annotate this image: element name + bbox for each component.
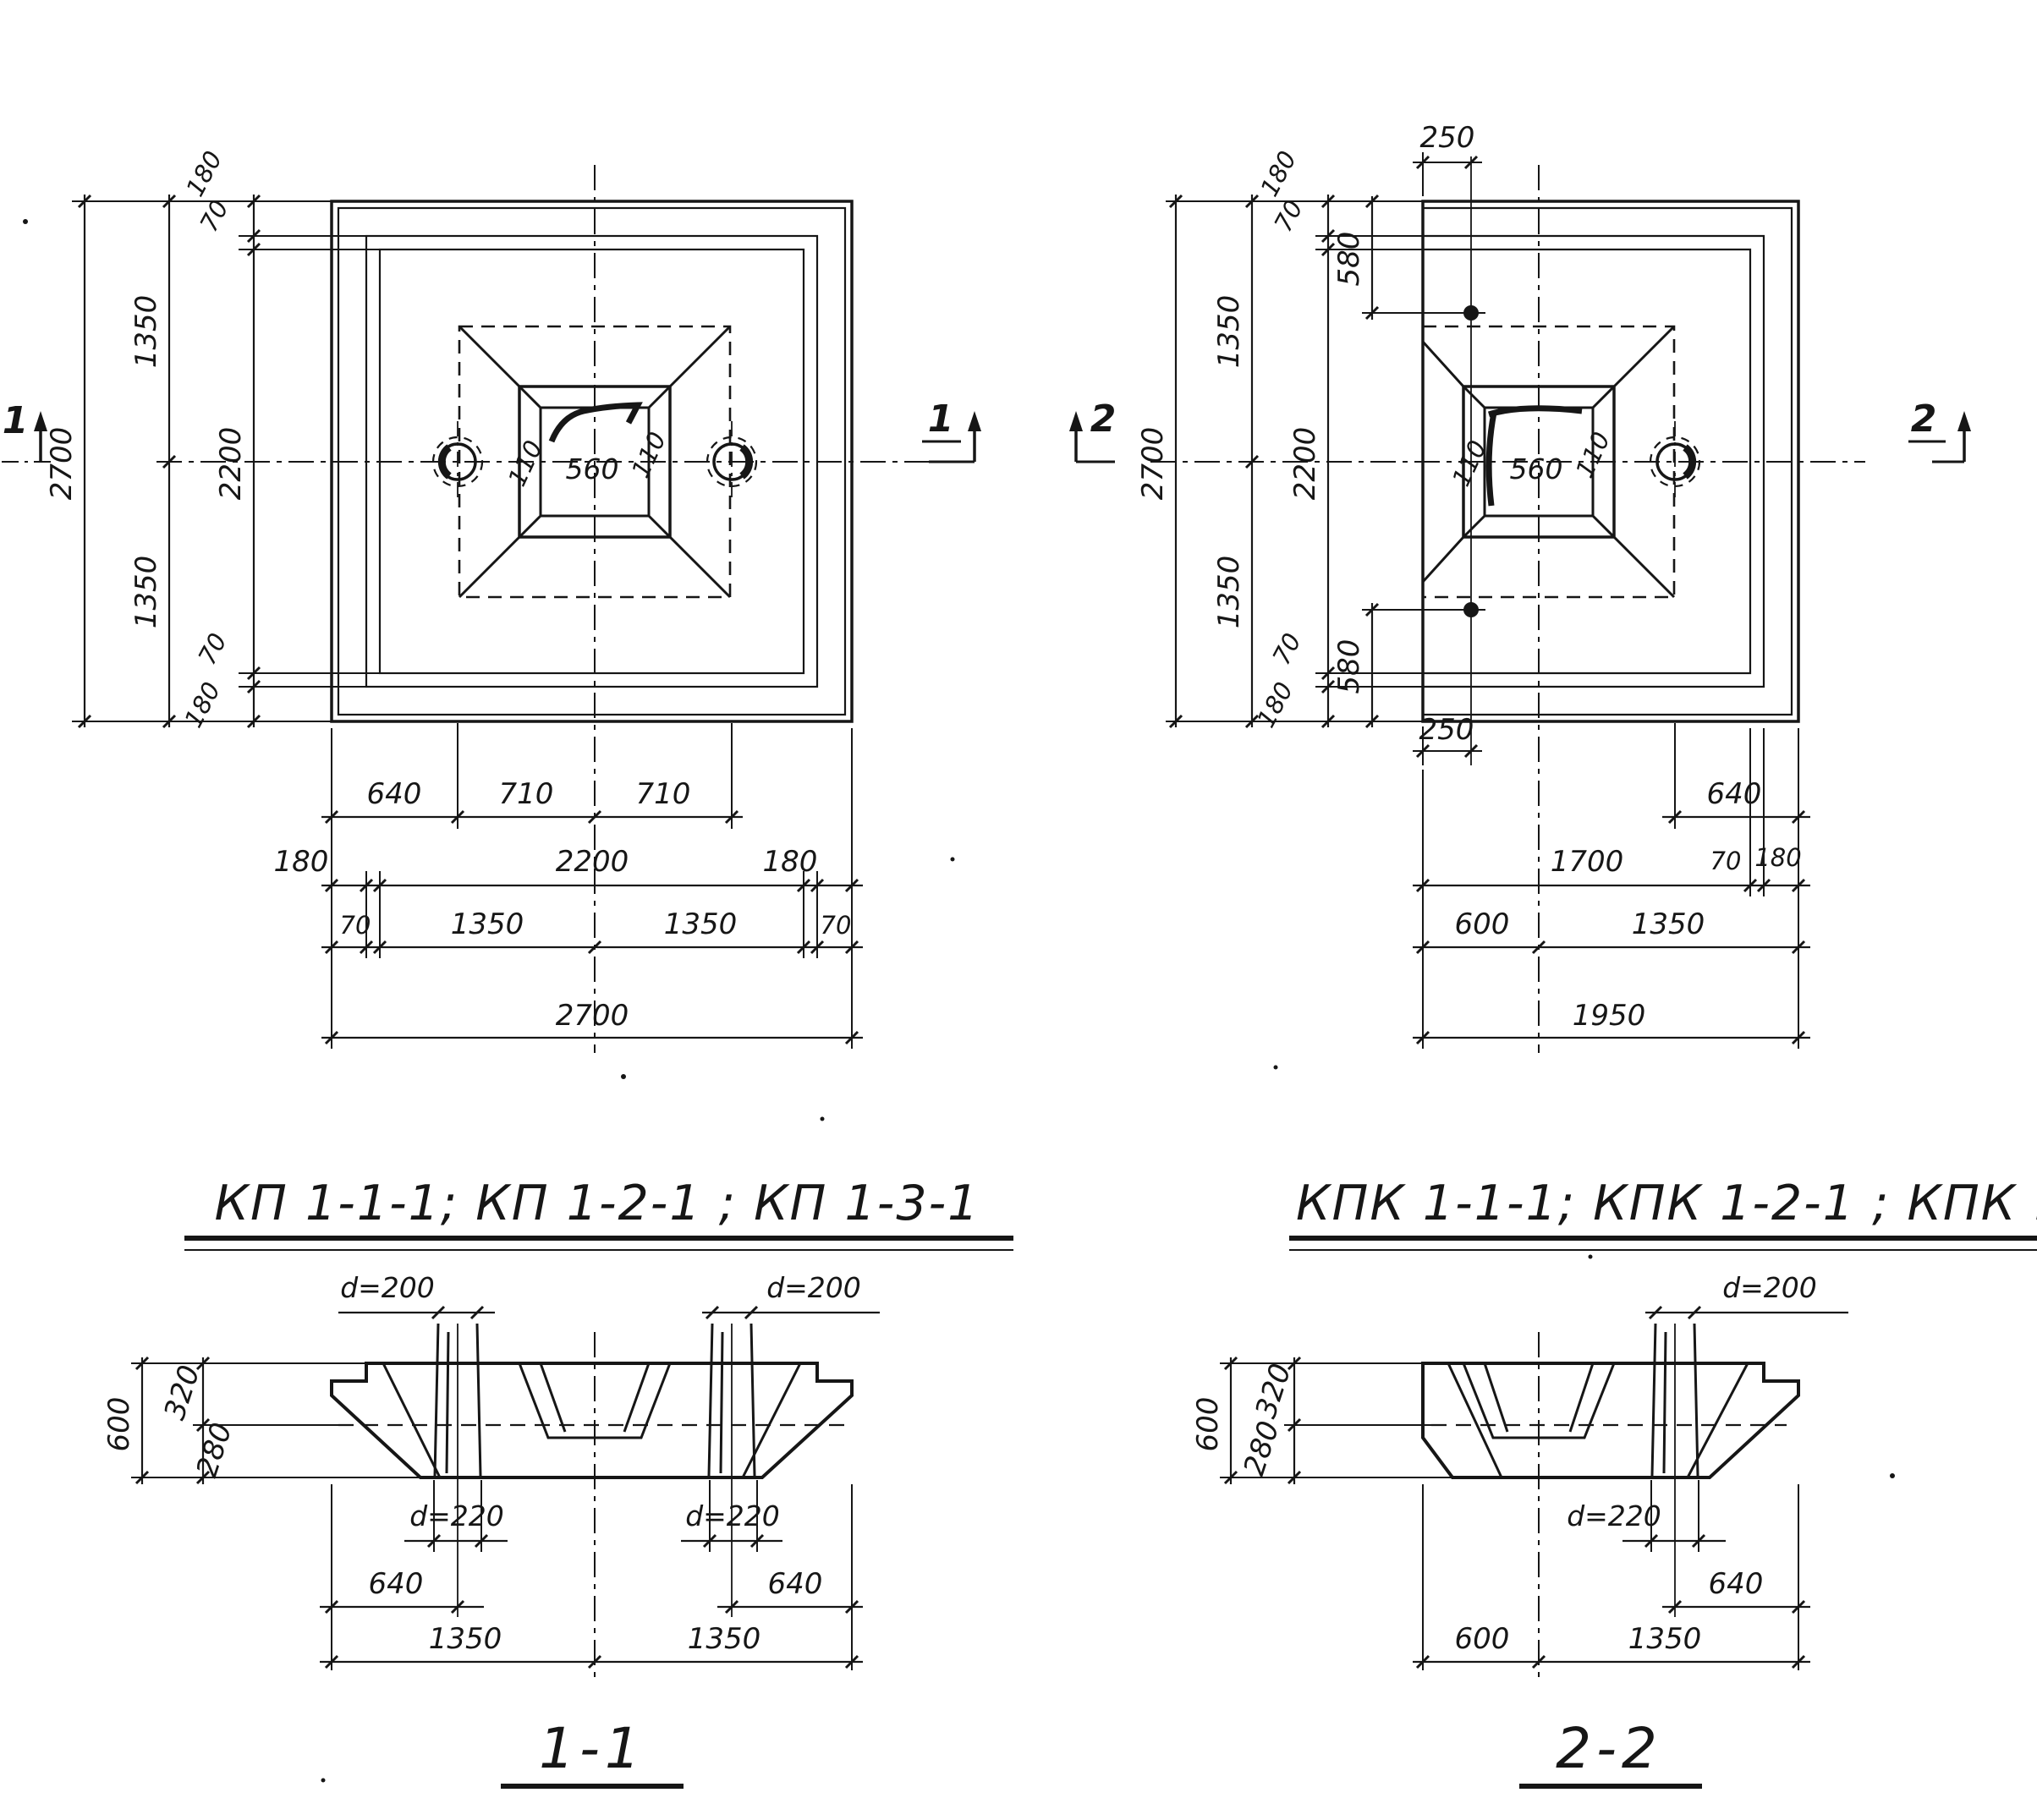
dim-70-left: 70 bbox=[340, 911, 371, 940]
dim-sleeve-d220-right: d=220 bbox=[685, 1499, 780, 1532]
dim-edge-70-bottom: 70 bbox=[1266, 628, 1306, 670]
section-mark-1-left: 1 bbox=[2, 399, 51, 462]
dim-half-bottom: 1350 bbox=[129, 556, 163, 629]
dim-edge-70-bottom: 70 bbox=[192, 628, 232, 670]
dim-half-top: 1350 bbox=[129, 295, 163, 369]
section-1-1-label: 1-1 bbox=[539, 1716, 645, 1781]
section-arrow-up bbox=[1069, 411, 1083, 431]
dim-total-height: 2700 bbox=[45, 427, 79, 501]
dim-edge-180-bottom: 180 bbox=[1251, 677, 1299, 732]
title-left: КП 1-1-1; КП 1-2-1 ; КП 1-3-1 bbox=[184, 1176, 1013, 1250]
dim-sleeve-d200: d=200 bbox=[1722, 1271, 1817, 1304]
dim-180-right: 180 bbox=[763, 845, 818, 879]
dim-1350-right: 1350 bbox=[688, 1622, 761, 1656]
dim-1350-right: 1350 bbox=[664, 907, 738, 941]
section-2-2: d=200 d=220 600 320 280 640 600 1350 2-2 bbox=[1191, 1271, 1848, 1786]
plan-left: 2700 1350 1350 180 70 2200 70 180 640 71… bbox=[2, 146, 981, 1053]
dim-edge-2200: 2200 bbox=[214, 427, 248, 501]
section-1-1: d=200 d=200 d=220 d=220 600 320 280 640 … bbox=[102, 1271, 880, 1786]
dim-180: 180 bbox=[1754, 843, 1801, 872]
section-mark-label: 1 bbox=[928, 397, 954, 441]
dim-640: 640 bbox=[367, 777, 422, 811]
section-2-2-side-slants bbox=[1448, 1363, 1748, 1477]
dim-sleeve-d220: d=220 bbox=[1567, 1499, 1661, 1532]
title-right: КПК 1-1-1; КПК 1-2-1 ; КПК 1-3-1 bbox=[1289, 1176, 2037, 1250]
dim-70-right: 70 bbox=[821, 911, 852, 940]
drawing-canvas: 2700 1350 1350 180 70 2200 70 180 640 71… bbox=[0, 0, 2037, 1820]
dim-height-280: 280 bbox=[189, 1419, 239, 1482]
dim-socket-560: 560 bbox=[566, 452, 619, 485]
dim-sleeve-d200-right: d=200 bbox=[766, 1271, 861, 1304]
dim-half-bottom: 1350 bbox=[1212, 556, 1246, 629]
section-mark-label: 2 bbox=[1090, 397, 1117, 441]
section-mark-2-left: 2 bbox=[1069, 397, 1116, 462]
dim-2200-bottom: 2200 bbox=[556, 845, 629, 879]
dim-180-left: 180 bbox=[274, 845, 329, 879]
section-mark-1-right: 1 bbox=[922, 397, 981, 462]
dim-70: 70 bbox=[1710, 847, 1742, 875]
dim-1350: 1350 bbox=[1632, 907, 1705, 941]
dim-1350-left: 1350 bbox=[451, 907, 524, 941]
dim-640-right: 640 bbox=[768, 1567, 823, 1601]
dim-600: 600 bbox=[1455, 907, 1510, 941]
dim-dowel-580-top: 580 bbox=[1332, 232, 1366, 287]
title-left-text: КП 1-1-1; КП 1-2-1 ; КП 1-3-1 bbox=[215, 1176, 980, 1231]
dim-1700: 1700 bbox=[1551, 845, 1624, 879]
section-arrow-up bbox=[34, 411, 47, 431]
dim-total-height: 2700 bbox=[1136, 427, 1170, 501]
dim-sleeve-d220-left: d=220 bbox=[409, 1499, 504, 1532]
section-2-2-label: 2-2 bbox=[1556, 1716, 1662, 1781]
dim-640: 640 bbox=[1707, 777, 1762, 811]
section-mark-label: 2 bbox=[1911, 397, 1937, 441]
dim-socket-560: 560 bbox=[1510, 452, 1563, 485]
dim-640: 640 bbox=[1709, 1567, 1764, 1601]
section-2-2-outline bbox=[1423, 1363, 1798, 1477]
section-1-1-ticks bbox=[136, 1307, 858, 1668]
dim-edge-2200: 2200 bbox=[1288, 427, 1322, 501]
dim-1350-left: 1350 bbox=[429, 1622, 502, 1656]
section-1-1-outline bbox=[332, 1363, 852, 1477]
dim-socket-110-right: 110 bbox=[1570, 428, 1616, 483]
dim-edge-180-top: 180 bbox=[180, 146, 228, 201]
dim-710-right: 710 bbox=[636, 777, 691, 811]
drawing-sheet: 2700 1350 1350 180 70 2200 70 180 640 71… bbox=[0, 0, 2037, 1820]
section-mark-label: 1 bbox=[3, 399, 29, 442]
dim-640-left: 640 bbox=[369, 1567, 424, 1601]
dim-1350: 1350 bbox=[1628, 1622, 1702, 1656]
dim-1950: 1950 bbox=[1573, 999, 1646, 1033]
dim-710-left: 710 bbox=[499, 777, 554, 811]
section-arrow-up bbox=[1957, 411, 1971, 431]
dim-edge-180-top: 180 bbox=[1255, 146, 1302, 201]
dim-height-320: 320 bbox=[1249, 1360, 1298, 1423]
dim-height-320: 320 bbox=[157, 1362, 206, 1424]
dim-edge-180-bottom: 180 bbox=[178, 677, 226, 732]
section-arrow-up bbox=[968, 411, 981, 431]
dim-half-top: 1350 bbox=[1212, 295, 1246, 369]
dim-dowel-580-bottom: 580 bbox=[1332, 639, 1366, 694]
dim-height-600: 600 bbox=[102, 1397, 136, 1452]
dim-socket-110-right: 110 bbox=[626, 428, 672, 483]
title-right-text: КПК 1-1-1; КПК 1-2-1 ; КПК 1-3-1 bbox=[1296, 1176, 2037, 1231]
dim-250-bottom: 250 bbox=[1419, 713, 1474, 747]
dim-height-280: 280 bbox=[1237, 1417, 1286, 1480]
section-1-1-bottom-dim-lines bbox=[320, 1607, 863, 1662]
dim-height-600: 600 bbox=[1191, 1397, 1225, 1452]
dim-sleeve-d200-left: d=200 bbox=[340, 1271, 435, 1304]
dim-2700-bottom: 2700 bbox=[556, 999, 629, 1033]
plan-right: 2700 1350 1350 180 70 2200 70 180 580 58… bbox=[1069, 121, 1971, 1053]
dim-250-top: 250 bbox=[1420, 121, 1475, 155]
section-2-2-ticks bbox=[1225, 1307, 1804, 1668]
dim-600: 600 bbox=[1455, 1622, 1510, 1656]
section-mark-2-right: 2 bbox=[1908, 397, 1971, 462]
